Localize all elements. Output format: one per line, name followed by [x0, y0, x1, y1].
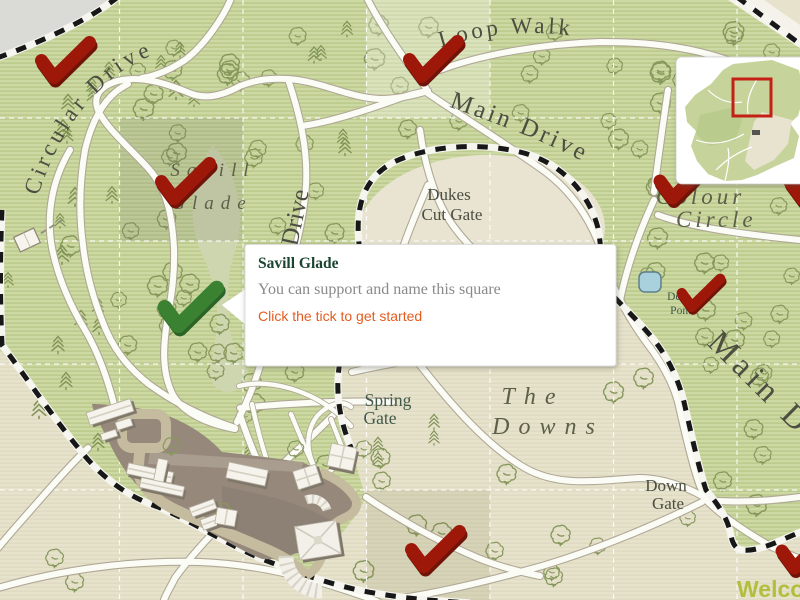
svg-text:Welco: Welco	[737, 576, 800, 600]
svg-text:Circle: Circle	[676, 207, 757, 232]
svg-text:Dukes: Dukes	[427, 185, 470, 204]
svg-text:Downs: Downs	[491, 414, 604, 440]
svg-text:Down: Down	[645, 476, 687, 495]
svg-text:Gate: Gate	[652, 494, 684, 513]
svg-text:Gate: Gate	[363, 408, 396, 428]
svg-text:You can support and name this: You can support and name this square	[258, 281, 501, 298]
svg-text:Cut Gate: Cut Gate	[422, 205, 483, 224]
svg-text:Spring: Spring	[365, 390, 412, 410]
svg-text:The: The	[502, 384, 565, 410]
svg-text:Click the tick to get started: Click the tick to get started	[258, 308, 422, 324]
svg-text:Savill Glade: Savill Glade	[258, 255, 339, 272]
